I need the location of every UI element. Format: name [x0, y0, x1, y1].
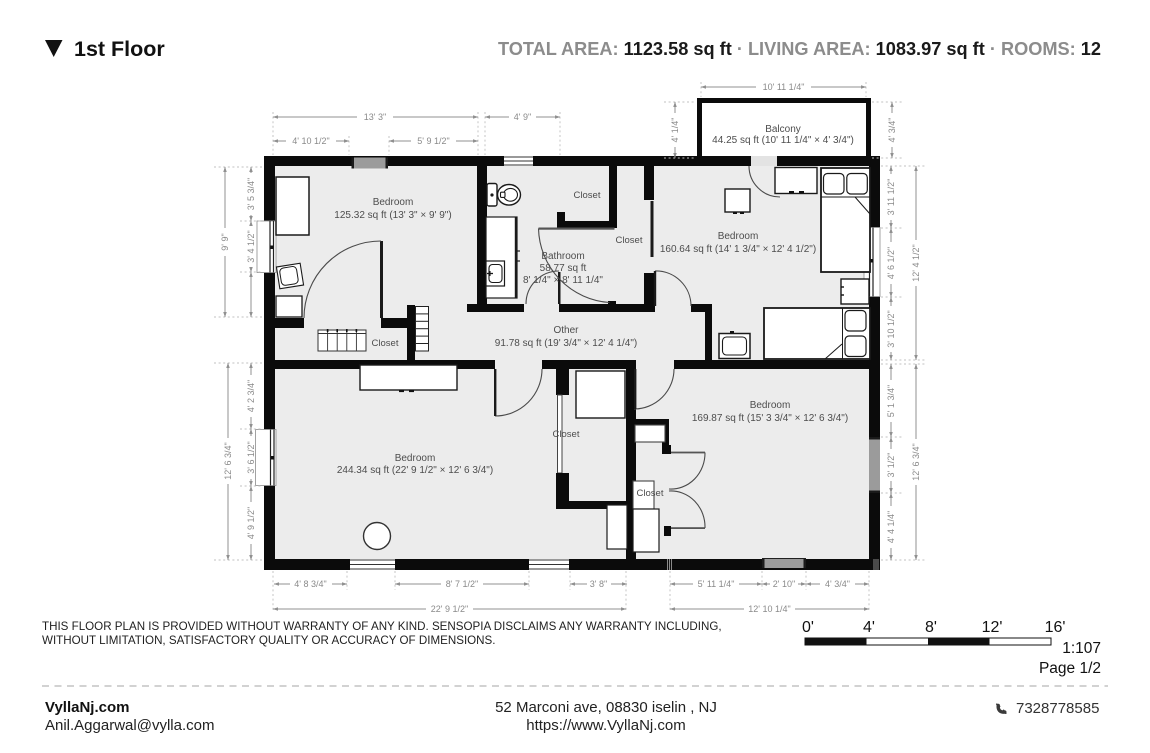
svg-text:16': 16'	[1045, 619, 1066, 636]
svg-text:TOTAL AREA: 1123.58 sq ft · LI: TOTAL AREA: 1123.58 sq ft · LIVING AREA:…	[498, 39, 1101, 59]
svg-text:4' 6 1/2": 4' 6 1/2"	[886, 247, 896, 279]
svg-text:Closet: Closet	[574, 190, 601, 201]
svg-text:Bathroom: Bathroom	[541, 251, 584, 262]
svg-text:169.87 sq ft (15' 3 3/4" × 12': 169.87 sq ft (15' 3 3/4" × 12' 6 3/4")	[692, 413, 848, 424]
svg-text:Bedroom: Bedroom	[373, 197, 414, 208]
svg-text:8' 1/4" × 8' 11 1/4": 8' 1/4" × 8' 11 1/4"	[523, 275, 603, 286]
svg-text:8' 7 1/2": 8' 7 1/2"	[446, 579, 478, 589]
svg-text:4' 3/4": 4' 3/4"	[825, 579, 850, 589]
svg-text:3' 10 1/2": 3' 10 1/2"	[886, 310, 896, 347]
svg-text:4' 4 1/4": 4' 4 1/4"	[886, 511, 896, 543]
svg-text:12' 4 1/2": 12' 4 1/2"	[911, 244, 921, 281]
svg-text:Page 1/2: Page 1/2	[1039, 660, 1101, 677]
svg-text:160.64 sq ft (14' 1 3/4" × 12': 160.64 sq ft (14' 1 3/4" × 12' 4 1/2")	[660, 244, 816, 255]
svg-text:10' 11 1/4": 10' 11 1/4"	[763, 82, 805, 92]
svg-text:44.25 sq ft (10' 11 1/4" × 4': 44.25 sq ft (10' 11 1/4" × 4' 3/4")	[712, 135, 854, 146]
svg-text:4' 1/4": 4' 1/4"	[670, 118, 680, 143]
svg-text:5' 1 3/4": 5' 1 3/4"	[886, 385, 896, 417]
svg-text:3' 5 3/4": 3' 5 3/4"	[246, 178, 256, 210]
svg-text:https://www.VyllaNj.com: https://www.VyllaNj.com	[526, 717, 686, 734]
svg-text:91.78 sq ft (19' 3/4" × 12' 4: 91.78 sq ft (19' 3/4" × 12' 4 1/4")	[495, 338, 637, 349]
svg-text:4' 3/4": 4' 3/4"	[887, 118, 897, 143]
svg-text:Bedroom: Bedroom	[718, 231, 759, 242]
svg-text:VyllaNj.com: VyllaNj.com	[45, 699, 129, 716]
svg-text:3' 8": 3' 8"	[590, 579, 607, 589]
svg-text:WITHOUT LIMITATION, SATISFACTO: WITHOUT LIMITATION, SATISFACTORY QUALITY…	[42, 634, 496, 647]
svg-text:4' 10 1/2": 4' 10 1/2"	[292, 136, 329, 146]
svg-text:Closet: Closet	[616, 235, 643, 246]
svg-text:1st Floor: 1st Floor	[74, 37, 165, 61]
svg-text:5' 9 1/2": 5' 9 1/2"	[417, 136, 449, 146]
svg-text:Bedroom: Bedroom	[750, 400, 791, 411]
svg-text:Closet: Closet	[637, 488, 664, 499]
svg-text:125.32 sq ft (13' 3" × 9' 9"): 125.32 sq ft (13' 3" × 9' 9")	[334, 210, 451, 221]
svg-text:4': 4'	[863, 619, 875, 636]
svg-text:Bedroom: Bedroom	[395, 453, 436, 464]
svg-text:7328778585: 7328778585	[1016, 700, 1099, 717]
svg-text:12': 12'	[982, 619, 1003, 636]
svg-text:13' 3": 13' 3"	[364, 112, 386, 122]
svg-text:12' 6 3/4": 12' 6 3/4"	[911, 443, 921, 480]
svg-text:Closet: Closet	[372, 338, 399, 349]
svg-text:4' 9": 4' 9"	[514, 112, 531, 122]
svg-text:52 Marconi ave, 08830 iselin ,: 52 Marconi ave, 08830 iselin , NJ	[495, 699, 717, 716]
svg-text:4' 9 1/2": 4' 9 1/2"	[246, 507, 256, 539]
svg-text:0': 0'	[802, 619, 814, 636]
svg-text:8': 8'	[925, 619, 937, 636]
svg-text:244.34 sq ft (22' 9 1/2" × 12': 244.34 sq ft (22' 9 1/2" × 12' 6 3/4")	[337, 465, 493, 476]
svg-text:3' 4 1/2": 3' 4 1/2"	[246, 230, 256, 262]
svg-text:3' 1/2": 3' 1/2"	[886, 453, 896, 478]
svg-text:4' 8 3/4": 4' 8 3/4"	[294, 579, 326, 589]
svg-text:3' 6 1/2": 3' 6 1/2"	[246, 441, 256, 473]
svg-text:2' 10": 2' 10"	[773, 579, 795, 589]
svg-text:12' 10 1/4": 12' 10 1/4"	[748, 604, 790, 614]
svg-text:Balcony: Balcony	[765, 124, 801, 135]
svg-text:58.77 sq ft: 58.77 sq ft	[540, 263, 587, 274]
svg-text:5' 11 1/4": 5' 11 1/4"	[698, 579, 735, 589]
svg-text:12' 6 3/4": 12' 6 3/4"	[223, 442, 233, 479]
svg-text:Closet: Closet	[553, 429, 580, 440]
svg-text:Anil.Aggarwal@vylla.com: Anil.Aggarwal@vylla.com	[45, 717, 214, 734]
svg-text:1:107: 1:107	[1062, 640, 1101, 657]
svg-text:9' 9": 9' 9"	[220, 233, 230, 250]
svg-text:Other: Other	[553, 325, 579, 336]
svg-text:4' 2 3/4": 4' 2 3/4"	[246, 380, 256, 412]
svg-text:3' 11 1/2": 3' 11 1/2"	[886, 179, 896, 216]
svg-text:THIS FLOOR PLAN IS PROVIDED WI: THIS FLOOR PLAN IS PROVIDED WITHOUT WARR…	[42, 620, 722, 633]
svg-text:22' 9 1/2": 22' 9 1/2"	[431, 604, 468, 614]
